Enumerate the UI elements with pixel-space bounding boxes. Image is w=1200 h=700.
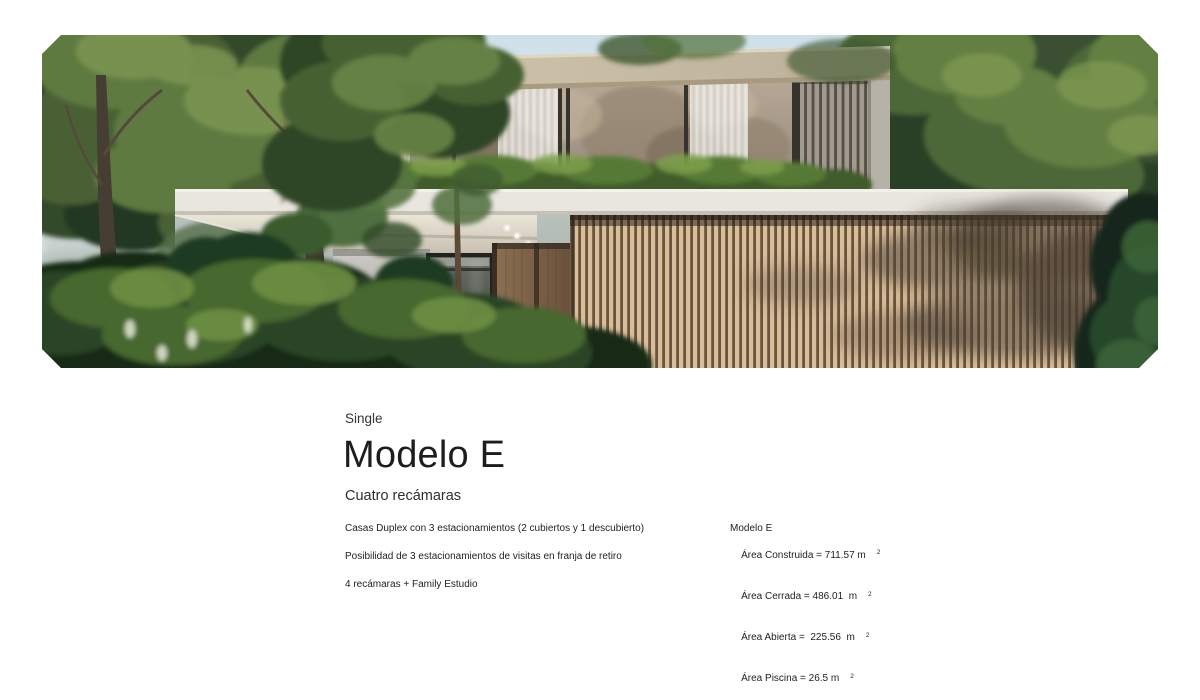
spec-row: Área Cerrada = 486.01 m2 bbox=[730, 577, 880, 618]
spec-superscript: 2 bbox=[850, 673, 854, 680]
spec-row: Área Construida = 711.57 m2 bbox=[730, 535, 880, 576]
spec-text: Área Cerrada = 486.01 m bbox=[741, 591, 857, 602]
eyebrow-label: Single bbox=[345, 411, 505, 426]
spec-text: Área Abierta = 225.56 m bbox=[741, 632, 855, 643]
house-render-illustration bbox=[42, 35, 1158, 368]
spec-row: Área Piscina = 26.5 m2 bbox=[730, 659, 880, 700]
hero-render-image bbox=[42, 35, 1158, 368]
upper-corner-panel bbox=[868, 77, 890, 197]
spec-row: Área Abierta = 225.56 m2 bbox=[730, 618, 880, 659]
spec-model-name: Modelo E bbox=[730, 522, 880, 535]
spec-list: Modelo E Área Construida = 711.57 m2 Áre… bbox=[730, 522, 880, 700]
intro-block: Single Modelo E Cuatro recámaras bbox=[345, 411, 505, 504]
feature-item: 4 recámaras + Family Estudio bbox=[345, 578, 745, 591]
page: { "page": { "background": "#ffffff" }, "… bbox=[0, 0, 1200, 631]
spec-superscript: 2 bbox=[868, 591, 872, 598]
feature-item: Casas Duplex con 3 estacionamientos (2 c… bbox=[345, 522, 745, 535]
spec-text: Área Construida = 711.57 m bbox=[741, 550, 866, 561]
spec-superscript: 2 bbox=[866, 632, 870, 639]
feature-item: Posibilidad de 3 estacionamientos de vis… bbox=[345, 550, 745, 563]
spec-text: Área Piscina = 26.5 m bbox=[741, 673, 839, 684]
subtitle: Cuatro recámaras bbox=[345, 488, 505, 504]
feature-list: Casas Duplex con 3 estacionamientos (2 c… bbox=[345, 522, 745, 605]
page-title: Modelo E bbox=[343, 434, 505, 477]
spec-superscript: 2 bbox=[877, 549, 881, 556]
wood-slat-wall bbox=[570, 198, 1158, 368]
